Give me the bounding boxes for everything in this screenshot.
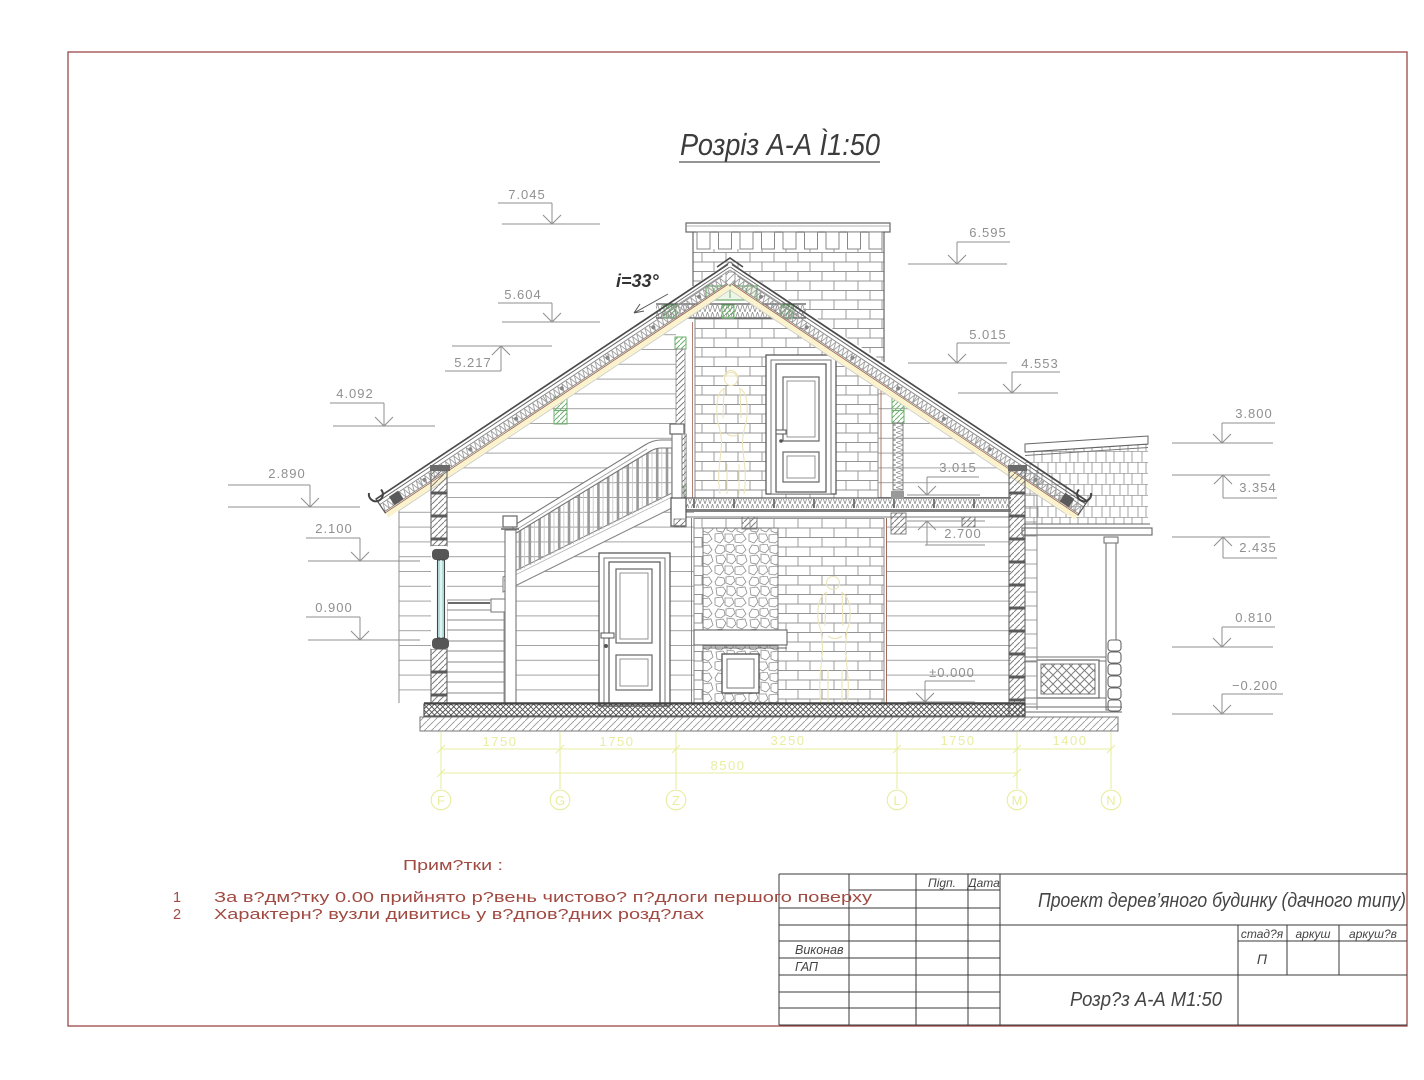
svg-text:M: M xyxy=(1012,793,1023,808)
svg-text:3.015: 3.015 xyxy=(939,460,977,475)
svg-text:Розр?з А-А М1:50: Розр?з А-А М1:50 xyxy=(1070,989,1222,1011)
svg-text:2: 2 xyxy=(173,907,181,923)
svg-text:1750: 1750 xyxy=(600,734,635,749)
svg-text:2.100: 2.100 xyxy=(315,521,353,536)
svg-text:F: F xyxy=(437,793,445,808)
svg-text:4.553: 4.553 xyxy=(1021,356,1059,371)
svg-text:Проект дерев’яного будинку: Проект дерев’яного будинку (дачного типу… xyxy=(1038,890,1406,912)
svg-text:ГАП: ГАП xyxy=(795,960,819,974)
svg-text:8500: 8500 xyxy=(711,758,746,773)
svg-text:Прим?тки :: Прим?тки : xyxy=(403,857,503,874)
svg-text:П: П xyxy=(1257,951,1268,967)
svg-text:0.810: 0.810 xyxy=(1235,610,1273,625)
svg-text:стад?я: стад?я xyxy=(1241,927,1284,941)
svg-text:Виконав: Виконав xyxy=(795,943,844,957)
svg-text:За в?дм?тку 0.00 прийнято: За в?дм?тку 0.00 прийнято р?вень чистово… xyxy=(214,890,873,906)
svg-text:G: G xyxy=(555,793,565,808)
svg-text:Дата: Дата xyxy=(966,876,1000,890)
svg-text:2.700: 2.700 xyxy=(944,526,982,541)
svg-text:5.015: 5.015 xyxy=(969,327,1007,342)
svg-text:1750: 1750 xyxy=(483,734,518,749)
svg-text:аркуш?в: аркуш?в xyxy=(1349,927,1397,941)
svg-text:3250: 3250 xyxy=(771,733,806,748)
svg-text:i=33°: i=33° xyxy=(616,271,660,291)
svg-text:3.800: 3.800 xyxy=(1235,406,1273,421)
svg-text:1750: 1750 xyxy=(941,733,976,748)
svg-text:5.217: 5.217 xyxy=(454,355,492,370)
svg-text:1400: 1400 xyxy=(1053,733,1088,748)
svg-text:±0.000: ±0.000 xyxy=(929,665,975,680)
svg-text:0.900: 0.900 xyxy=(315,600,353,615)
svg-text:6.595: 6.595 xyxy=(969,225,1007,240)
svg-text:Піgп.: Піgп. xyxy=(928,876,956,890)
svg-text:2.435: 2.435 xyxy=(1239,540,1277,555)
svg-text:Z: Z xyxy=(672,793,680,808)
svg-text:2.890: 2.890 xyxy=(268,466,306,481)
svg-text:4.092: 4.092 xyxy=(336,386,374,401)
svg-text:L: L xyxy=(893,793,900,808)
svg-text:Характерн? вузли дивитись: Характерн? вузли дивитись у в?дпов?дних … xyxy=(214,907,705,923)
svg-text:−0.200: −0.200 xyxy=(1232,678,1278,693)
svg-text:аркуш: аркуш xyxy=(1296,927,1331,941)
svg-text:3.354: 3.354 xyxy=(1239,480,1277,495)
svg-text:1: 1 xyxy=(173,890,181,906)
svg-text:N: N xyxy=(1106,793,1115,808)
svg-text:7.045: 7.045 xyxy=(508,187,546,202)
svg-text:Розріз А-А Ì1:50: Розріз А-А Ì1:50 xyxy=(680,127,880,162)
svg-text:5.604: 5.604 xyxy=(504,287,542,302)
